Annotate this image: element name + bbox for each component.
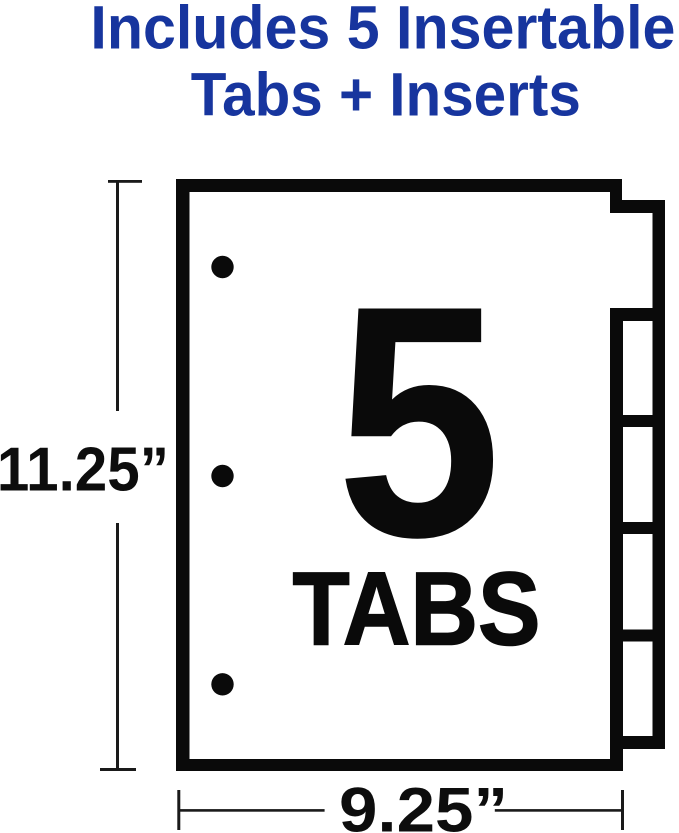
svg-text:TABS: TABS [293, 552, 541, 668]
svg-text:Tabs + Inserts: Tabs + Inserts [191, 61, 581, 129]
svg-text:Includes 5 Insertable: Includes 5 Insertable [90, 0, 675, 62]
svg-text:9.25”: 9.25” [339, 775, 508, 833]
svg-text:5: 5 [336, 237, 501, 606]
svg-text:11.25”: 11.25” [0, 435, 169, 504]
